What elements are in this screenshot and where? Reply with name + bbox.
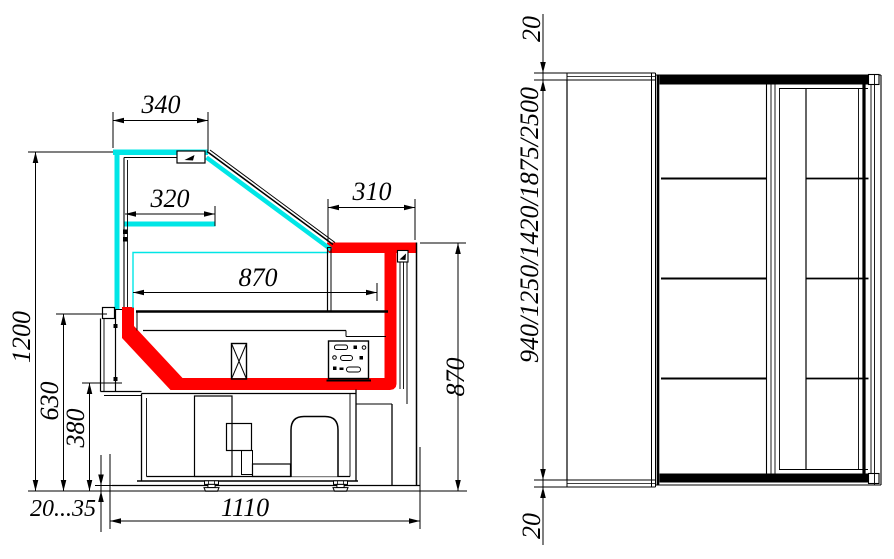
dim-length-options: 940/1250/1420/1875/2500 [515, 87, 544, 363]
sloped-glass [207, 158, 332, 250]
dim-front-height: 630 [35, 382, 64, 421]
screw-mark [114, 377, 118, 381]
dim-top-overhang: 20 [517, 16, 546, 42]
dim-bottom-overhang: 20 [517, 513, 546, 539]
worktop-fastener [398, 251, 409, 263]
drain-tray [253, 464, 291, 477]
dim-worktop-depth: 310 [352, 177, 392, 206]
corner-block-top [869, 75, 880, 85]
shelf-glass [124, 222, 216, 227]
control-box [327, 341, 372, 381]
small-box [242, 451, 253, 475]
upper-structure [103, 150, 335, 310]
dimension-labels: 340 320 310 870 1110 20...35 1200 630 38… [7, 16, 546, 539]
top-frame-bar [660, 76, 869, 85]
drawing-canvas: 340 320 310 870 1110 20...35 1200 630 38… [0, 0, 894, 559]
dim-display-depth: 870 [239, 263, 278, 292]
bottom-frame-bar [660, 474, 869, 483]
plan-view [567, 73, 881, 487]
dim-shelf-depth: 320 [150, 184, 190, 213]
shelf-bracket [123, 237, 128, 242]
dim-canopy-depth: 340 [141, 90, 181, 119]
glass-elements [113, 150, 331, 311]
dim-worktop-height: 870 [441, 358, 470, 397]
front-glass [115, 150, 120, 310]
compressor [291, 417, 338, 477]
end-overhang-strip-top [567, 73, 656, 80]
dim-overall-height: 1200 [7, 311, 36, 363]
panel-joints-right [806, 179, 869, 379]
panel-joints-middle [661, 179, 767, 379]
shelf-bracket [123, 230, 128, 235]
screw-mark [114, 324, 118, 328]
dim-deck-height: 380 [61, 409, 90, 449]
evaporator-box [227, 424, 252, 451]
deck-support [232, 344, 247, 380]
technical-drawing-display-case: 340 320 310 870 1110 20...35 1200 630 38… [0, 0, 894, 559]
end-overhang-strip-bottom [567, 480, 656, 487]
dim-base-depth: 1110 [221, 493, 269, 522]
dim-foot-adjust: 20...35 [30, 496, 96, 522]
corner-block-bottom [869, 474, 880, 484]
bumper-profile [103, 308, 115, 319]
display-liner [133, 253, 329, 309]
